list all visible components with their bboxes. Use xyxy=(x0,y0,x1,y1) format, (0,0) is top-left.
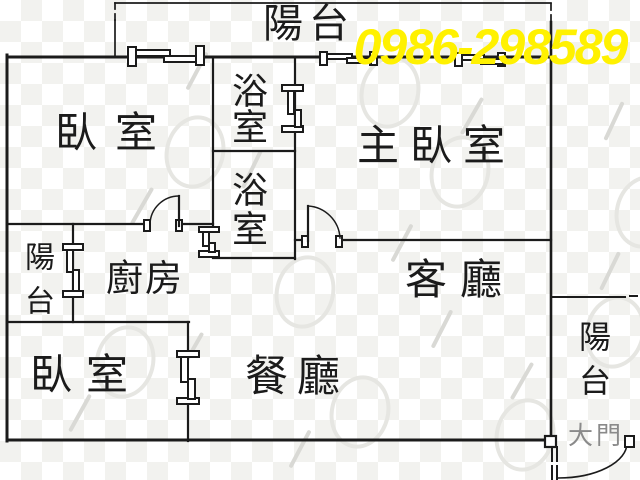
label-dining-room: 餐廳 xyxy=(245,356,349,399)
label-main-door: 大門 xyxy=(568,424,624,449)
label-bedroom-bottom: 臥室 xyxy=(30,355,142,397)
label-master-bedroom: 主臥室 xyxy=(357,126,516,168)
floor-plan: 0986-298589 陽台 臥室 浴室 浴室 主臥室 陽台 廚房 客廳 臥室 … xyxy=(0,0,640,480)
phone-number: 0986-298589 xyxy=(354,19,629,75)
label-bedroom-top: 臥室 xyxy=(55,113,175,155)
label-bathroom-lower: 浴室 xyxy=(229,171,265,249)
window-bedroom2 xyxy=(177,351,199,404)
window-left-balcony xyxy=(63,244,83,297)
label-bathroom-upper: 浴室 xyxy=(229,72,265,144)
window-bathroom1 xyxy=(282,85,303,132)
door-master-bedroom xyxy=(302,206,342,247)
floor-plan-drawing: 0986-298589 xyxy=(0,0,640,480)
door-bedroom1 xyxy=(144,196,182,231)
label-balcony-top: 陽台 xyxy=(263,4,355,44)
label-balcony-right: 陽台 xyxy=(577,320,609,408)
window-kitchen xyxy=(199,227,219,257)
window-bedroom1-top xyxy=(128,46,204,66)
label-living-room: 客廳 xyxy=(405,260,515,302)
label-balcony-left: 陽台 xyxy=(21,241,51,329)
label-kitchen: 廚房 xyxy=(106,261,184,298)
